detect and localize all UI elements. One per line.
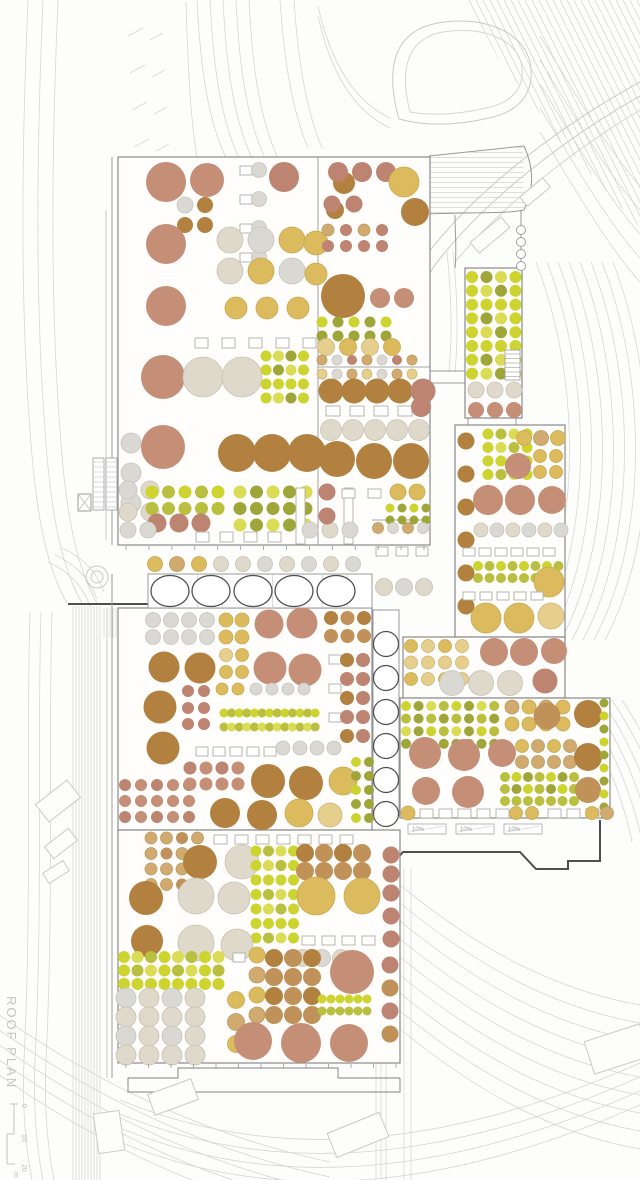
planting-circle <box>412 777 440 805</box>
planting-circle <box>409 737 441 769</box>
roof-plan-drawing: 10%10%10% <box>0 0 640 1180</box>
contour-lines <box>318 6 390 128</box>
planting-circle <box>285 799 313 827</box>
planting-circle <box>251 764 285 798</box>
slope-label-text: 10% <box>412 827 425 833</box>
planting-circle <box>473 485 503 515</box>
planter-squares-row <box>463 592 543 600</box>
planting-row <box>468 402 522 418</box>
contour-lines <box>394 880 640 1150</box>
planting-row <box>468 382 522 398</box>
planting-circle <box>480 638 508 666</box>
skylight-dome <box>374 802 399 827</box>
roof-plan-page: 10%10%10% ROOF PLAN 0 10 20 m <box>0 0 640 1180</box>
planting-circle <box>330 1024 368 1062</box>
planting-circle <box>144 691 177 724</box>
planting-circle <box>129 881 163 915</box>
planting-circle <box>505 485 535 515</box>
contour-lines <box>447 252 457 372</box>
scale-tick-10: 10 <box>20 1134 27 1142</box>
planting-circle <box>321 274 365 318</box>
planting-circle <box>538 603 564 629</box>
planting-row <box>220 723 320 732</box>
contour-lines <box>186 2 199 168</box>
skylight-dome <box>151 576 189 607</box>
planting-circle <box>253 434 291 472</box>
scale-bar: 0 10 20 m <box>2 1098 36 1178</box>
planting-column <box>383 885 400 948</box>
planter-squares-row <box>196 747 276 756</box>
planter-box <box>296 488 305 544</box>
planting-circle <box>504 603 534 633</box>
planter-squares-row <box>214 835 353 844</box>
skylight-column <box>373 610 399 827</box>
planting-circle <box>255 610 284 639</box>
planting-circle <box>574 700 602 728</box>
planting-circle <box>510 638 538 666</box>
planting-circle <box>210 798 240 828</box>
planter-squares-row <box>420 809 509 818</box>
skylight-band <box>148 574 372 608</box>
planting-circle <box>287 608 318 639</box>
planting-row <box>225 297 309 319</box>
planting-circle <box>505 453 531 479</box>
planting-circle <box>452 776 484 808</box>
planting-row <box>440 671 523 696</box>
skylight-dome <box>374 700 399 725</box>
contour-lines <box>48 548 104 606</box>
planting-circle <box>401 806 415 820</box>
planting-circle <box>185 653 216 684</box>
planting-circle <box>305 263 327 285</box>
planting-circle <box>141 355 185 399</box>
planting-circle <box>178 878 214 914</box>
planting-row <box>302 522 358 538</box>
planting-circle <box>147 732 180 765</box>
planting-circle <box>319 484 336 501</box>
planting-grid <box>119 779 195 823</box>
planting-circle <box>541 638 567 664</box>
planting-circle <box>575 777 601 803</box>
planting-circle <box>471 603 501 633</box>
planting-circle <box>234 1022 272 1060</box>
scale-tick-20: 20 <box>20 1164 27 1172</box>
planting-circle <box>488 739 516 767</box>
planting-circle <box>183 845 217 879</box>
planting-circle <box>146 286 186 326</box>
planting-circle <box>269 162 299 192</box>
planting-column <box>600 699 609 812</box>
slope-label-text: 10% <box>508 827 521 833</box>
stair-icon <box>505 350 520 380</box>
slope-label-text: 10% <box>460 827 473 833</box>
planting-circle <box>448 739 480 771</box>
planting-circle <box>319 508 336 525</box>
site-stair <box>93 458 104 510</box>
planting-circle <box>146 224 186 264</box>
planting-circle <box>289 766 323 800</box>
planting-row <box>321 420 430 441</box>
skylight-dome <box>374 666 399 691</box>
contour-lines <box>197 0 278 158</box>
skylight-dome <box>374 632 399 657</box>
skylight-dome <box>374 734 399 759</box>
planting-circle <box>393 443 429 479</box>
site-building <box>520 178 551 206</box>
planting-circle <box>533 669 558 694</box>
planting-circle <box>318 803 342 827</box>
contour-lines <box>23 0 97 603</box>
planting-row <box>376 579 433 596</box>
contour-lines <box>280 0 322 148</box>
scale-tick-0: 0 <box>20 1104 27 1108</box>
planting-circle <box>218 882 250 914</box>
plan-title: ROOF PLAN <box>4 996 19 1096</box>
planting-circle <box>281 1023 321 1063</box>
planting-circle <box>297 877 335 915</box>
slope-labels: 10%10%10% <box>408 824 542 834</box>
planting-column <box>121 433 141 513</box>
planting-circle <box>574 743 602 771</box>
planter-squares-row <box>233 953 245 962</box>
skylight-dome <box>374 768 399 793</box>
scale-bar-line <box>7 1104 18 1164</box>
skylight-dome <box>275 576 313 607</box>
planting-circle <box>401 198 429 226</box>
planting-circle <box>319 441 355 477</box>
planting-row <box>328 162 396 182</box>
planting-circle <box>218 434 256 472</box>
planting-circle <box>183 357 223 397</box>
planting-circle <box>411 397 431 417</box>
planting-row <box>148 514 211 533</box>
site-building <box>470 217 510 253</box>
planting-row <box>517 431 566 446</box>
site-stair <box>106 458 117 510</box>
planting-circle <box>289 654 322 687</box>
planting-circle <box>146 162 186 202</box>
site-building <box>148 1079 199 1115</box>
scale-unit: m <box>12 1172 19 1178</box>
planting-circle <box>538 486 566 514</box>
site-building <box>93 1110 124 1153</box>
planting-circle <box>247 800 277 830</box>
planting-row <box>220 709 320 718</box>
planting-circle <box>389 167 419 197</box>
planting-circle <box>356 443 392 479</box>
planter-squares-row <box>376 547 428 556</box>
planting-circle <box>149 652 180 683</box>
planting-grid <box>500 772 579 806</box>
skylight-dome <box>192 576 230 607</box>
site-building <box>43 861 70 884</box>
contour-lines <box>104 608 116 638</box>
planting-circle <box>190 163 224 197</box>
skylight-dome <box>317 576 355 607</box>
skylight-dome <box>234 576 272 607</box>
planting-circle <box>254 652 287 685</box>
planting-circle <box>344 878 380 914</box>
planting-row <box>148 557 361 572</box>
planting-circle <box>222 357 262 397</box>
planting-circle <box>330 950 374 994</box>
planting-circle <box>534 703 561 730</box>
planting-circle <box>141 425 185 469</box>
